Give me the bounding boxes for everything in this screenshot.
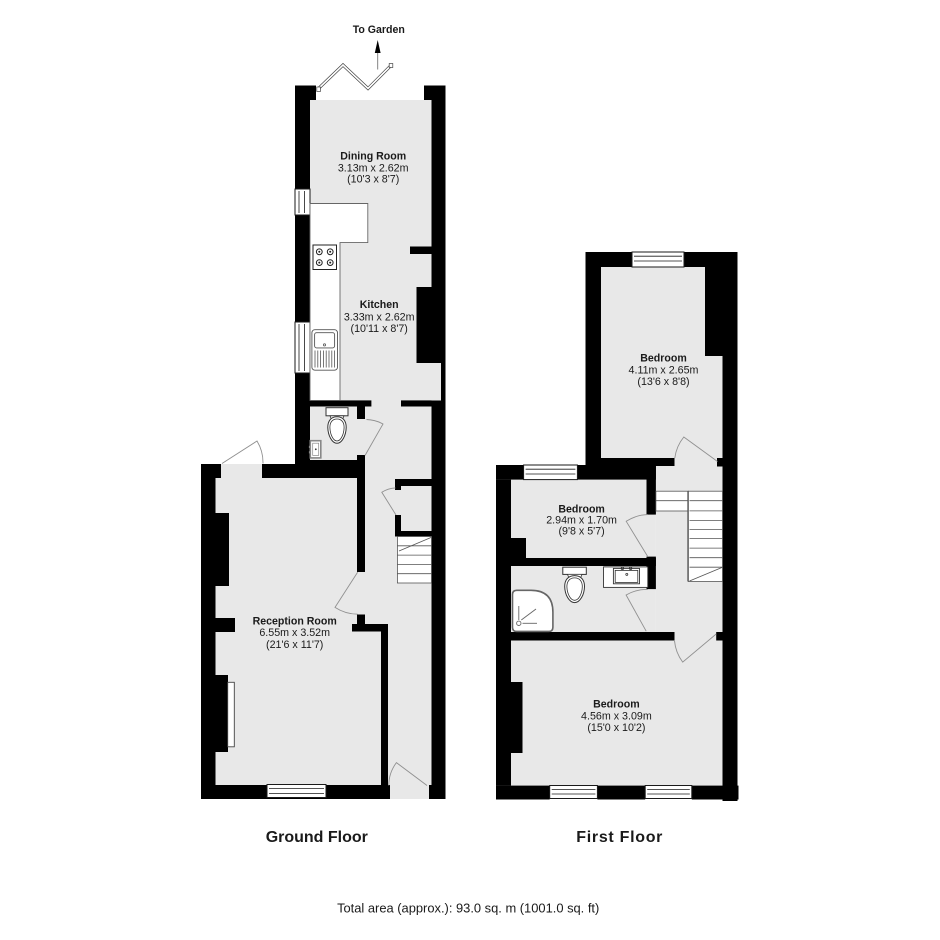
svg-text:6.55m x 3.52m: 6.55m x 3.52m: [259, 627, 330, 639]
svg-text:(13'6 x 8'8): (13'6 x 8'8): [637, 376, 689, 388]
svg-text:(15'0 x 10'2): (15'0 x 10'2): [587, 722, 645, 734]
svg-text:Total area (approx.): 93.0 sq.: Total area (approx.): 93.0 sq. m (1001.0…: [337, 900, 599, 915]
svg-text:2.94m x 1.70m: 2.94m x 1.70m: [546, 514, 617, 526]
svg-text:3.13m x 2.62m: 3.13m x 2.62m: [338, 162, 409, 174]
svg-text:First Floor: First Floor: [576, 829, 663, 846]
svg-text:Kitchen: Kitchen: [360, 299, 399, 311]
svg-text:To Garden: To Garden: [353, 24, 405, 36]
svg-text:(21'6 x 11'7): (21'6 x 11'7): [266, 639, 323, 651]
svg-text:Dining Room: Dining Room: [340, 151, 406, 163]
svg-text:Reception Room: Reception Room: [253, 615, 337, 627]
svg-text:Ground Floor: Ground Floor: [266, 829, 368, 846]
svg-text:Bedroom: Bedroom: [593, 699, 640, 711]
svg-text:4.11m x 2.65m: 4.11m x 2.65m: [629, 364, 699, 376]
svg-text:(10'11 x 8'7): (10'11 x 8'7): [351, 323, 408, 335]
svg-text:(10'3 x 8'7): (10'3 x 8'7): [347, 174, 399, 186]
svg-text:Bedroom: Bedroom: [640, 352, 687, 364]
svg-text:4.56m x 3.09m: 4.56m x 3.09m: [581, 710, 652, 722]
svg-text:3.33m x 2.62m: 3.33m x 2.62m: [344, 312, 415, 324]
svg-text:(9'8 x 5'7): (9'8 x 5'7): [558, 526, 604, 538]
